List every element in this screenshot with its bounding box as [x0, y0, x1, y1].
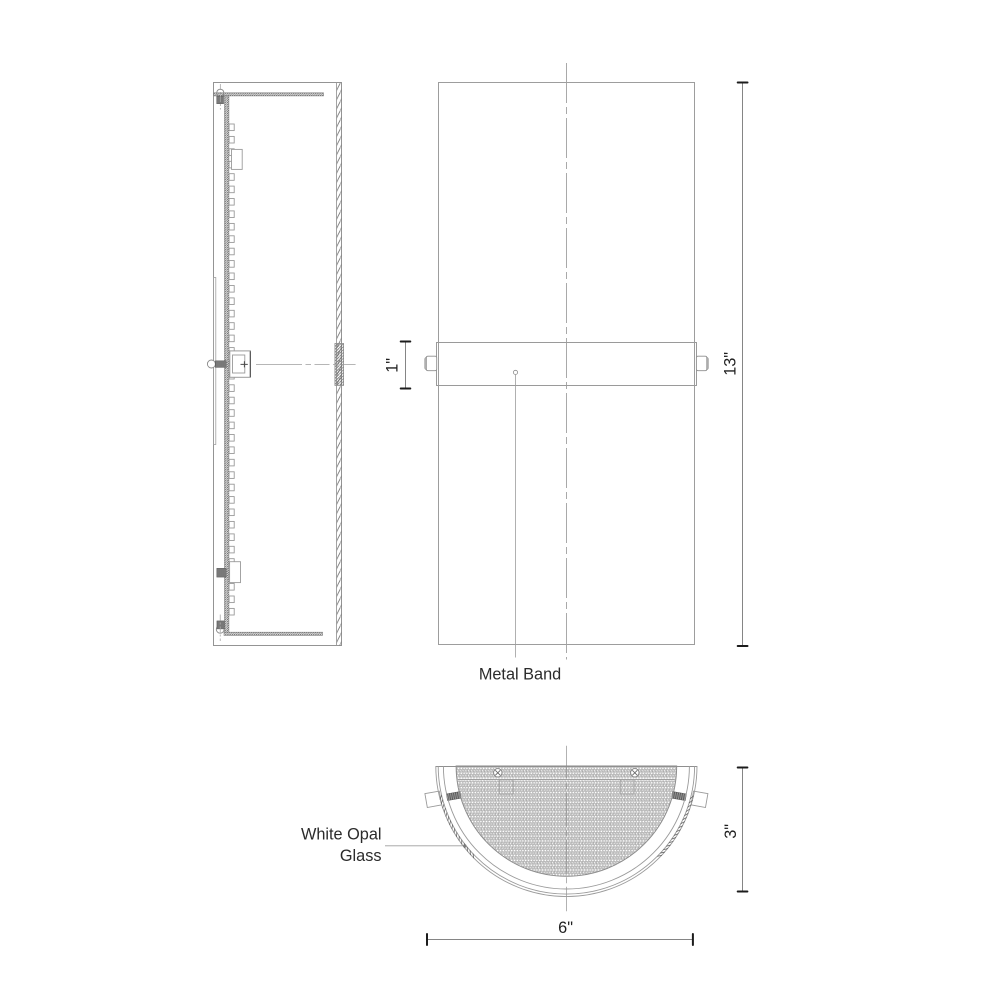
svg-text:Glass: Glass — [340, 847, 382, 865]
svg-text:6": 6" — [558, 919, 573, 937]
svg-text:3": 3" — [722, 824, 740, 839]
svg-text:White Opal: White Opal — [301, 826, 382, 844]
svg-text:13": 13" — [721, 352, 739, 376]
svg-text:1": 1" — [384, 358, 402, 373]
svg-text:Metal Band: Metal Band — [479, 666, 561, 684]
